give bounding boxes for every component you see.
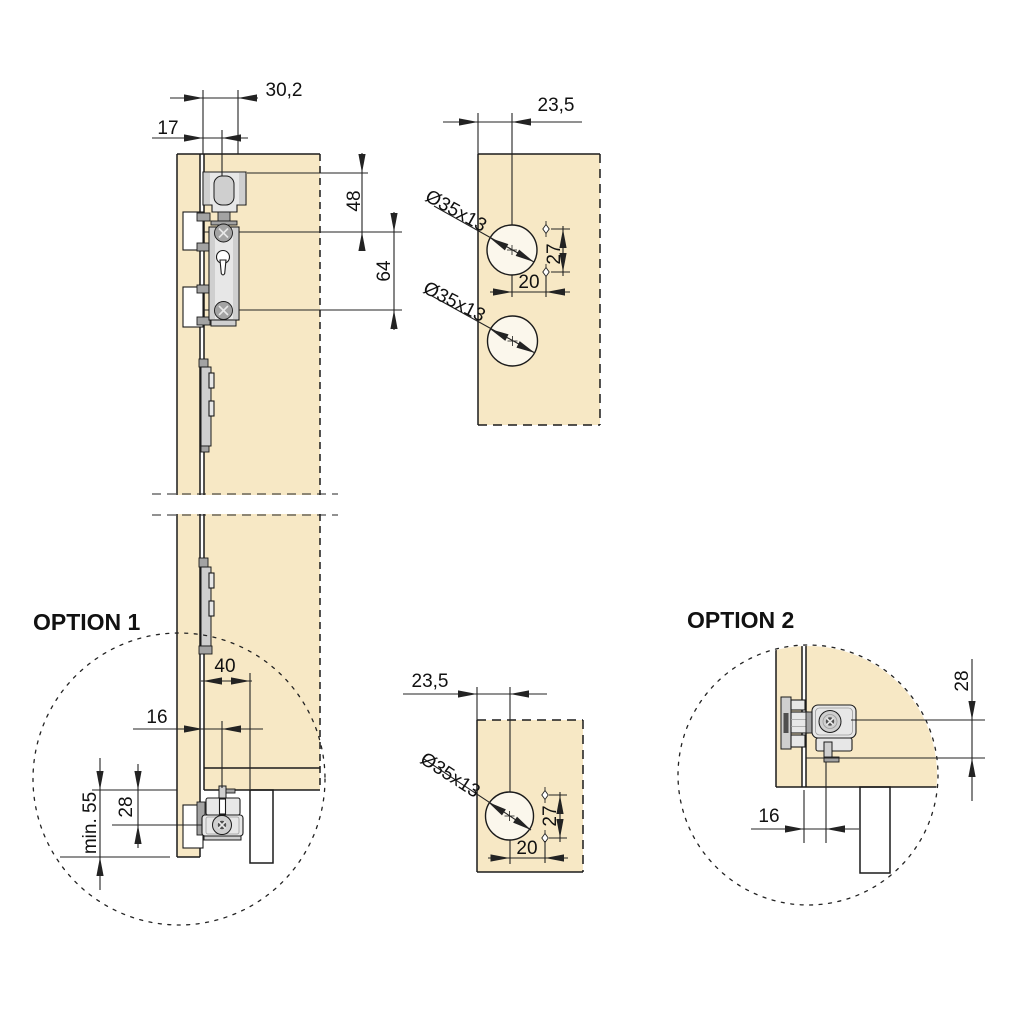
dim-label-option1-min-height: min. 55: [80, 792, 101, 854]
mounting-plate: [209, 224, 239, 326]
option2-detail: [678, 640, 946, 905]
plate-screw-upper: [215, 224, 233, 242]
bottom-guide-option1: [197, 786, 243, 840]
guide-screw: [213, 816, 232, 835]
sliding-door-installation-diagram: 30,2 17 48 64 23,5 Ø35x13 Ø35x13 27 20 2…: [0, 0, 1024, 1024]
dim-label-option1-track-offset: 40: [214, 656, 235, 677]
plinth-option1: [250, 790, 273, 863]
plinth-option2: [860, 787, 890, 873]
dim-label-option1-guide-inset: 16: [146, 707, 167, 728]
dim-label-template-bottom-edge: 23,5: [412, 671, 449, 692]
dim-label-option1-screw-height: 28: [116, 796, 137, 817]
dim-label-door-thickness: 17: [157, 118, 178, 139]
hole-label-3: Ø35x13: [416, 749, 483, 803]
dim-label-option2-screw-height: 28: [952, 670, 973, 691]
dim-label-template-top-edge: 23,5: [538, 95, 575, 116]
guide-screw: [819, 711, 841, 733]
dim-label-option2-guide-inset: 16: [758, 806, 779, 827]
dim-label-template-bottom-horizontal: 20: [516, 838, 537, 859]
plate-screw-lower: [215, 302, 233, 320]
dim-label-template-top-vertical: 27: [544, 243, 565, 264]
dim-label-template-top-horizontal: 20: [518, 272, 539, 293]
main-section-view: [148, 154, 402, 863]
dim-label-top-offset: 30,2: [266, 80, 303, 101]
drilling-template-top: [478, 113, 600, 425]
dim-label-top-to-plate: 48: [344, 190, 365, 211]
option1-title: OPTION 1: [33, 609, 141, 635]
dim-label-screw-spacing: 64: [374, 260, 395, 282]
dim-label-template-bottom-vertical: 27: [540, 805, 561, 826]
installation-drawing-page: 30,2 17 48 64 23,5 Ø35x13 Ø35x13 27 20 2…: [0, 0, 1024, 1024]
break-lines: [148, 494, 344, 515]
roller-wheel: [214, 176, 234, 205]
roller-bolt: [218, 212, 230, 221]
option2-title: OPTION 2: [687, 607, 794, 633]
plate-foot: [211, 320, 236, 326]
